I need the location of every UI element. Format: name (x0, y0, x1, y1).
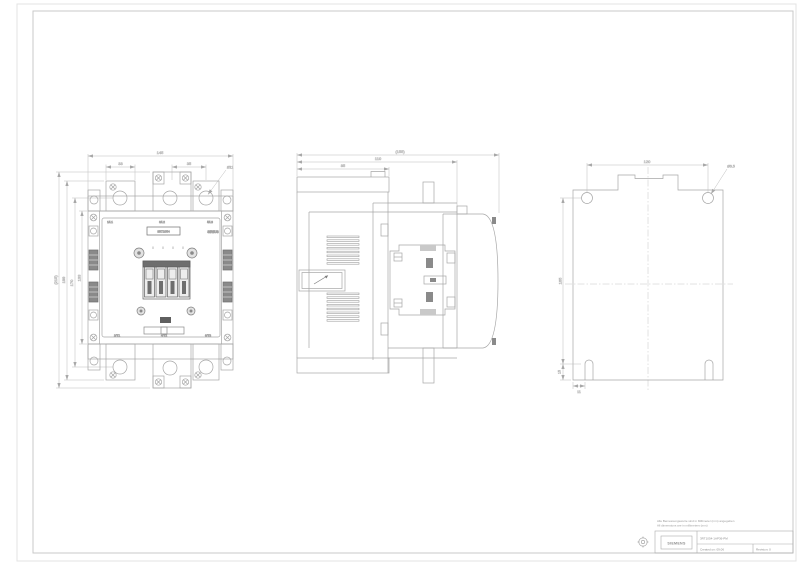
note-de: Alle Bemessungswerte sind in Millimeter … (657, 519, 735, 523)
terminal-label-2T1: 2/T1 (114, 334, 120, 338)
left-rail-clips (89, 226, 98, 320)
coil-terminal-block (143, 261, 190, 299)
dim-hole-dia: Ø11 (227, 166, 233, 170)
dim-hole-pitch: 120 (644, 159, 651, 164)
front-face: 1/L1 3/L2 5/L3 2/T1 4/T2 6/T3 3RT1054 SI… (102, 218, 220, 338)
dim-depth-mid: 110 (375, 156, 382, 161)
dim-lug-left: 33 (118, 161, 123, 166)
dim-lug-right: 35 (187, 161, 192, 166)
field-scale: Revision: 0 (756, 548, 771, 552)
title-block: Alle Bemessungswerte sind in Millimeter … (638, 519, 794, 553)
terminal-label-3L2: 3/L2 (159, 220, 165, 224)
mounting-slot-left (585, 360, 593, 380)
terminal-label-1L1: 1/L1 (107, 220, 113, 224)
dim-rear-height-holes: 165 (557, 277, 562, 284)
side-view-dimensions: (155) 110 85 (297, 149, 499, 213)
dim-depth-total: (155) (395, 149, 405, 154)
projection-symbol-icon (638, 537, 649, 548)
dim-depth-front: 85 (341, 163, 346, 168)
dim-slot-edge: 11 (577, 390, 581, 394)
front-terminals-bottom (88, 344, 233, 388)
front-terminals-top (88, 172, 233, 211)
device-type-label: 3RT1054 (157, 230, 170, 234)
dim-height-body: 133 (77, 274, 82, 281)
rear-view-dimensions: 120 Ø6.5 165 15 11 (557, 159, 734, 394)
company-logo: SIEMENS (667, 541, 686, 545)
dim-height-holes: 170 (69, 279, 74, 286)
note-en: All dimensions are in millimeters (mm) (657, 524, 708, 528)
dim-height-outer: 199 (61, 276, 66, 283)
dim-width-total: 145 (157, 150, 164, 155)
right-rail-clips (223, 226, 232, 320)
field-created: Created on: 09.06 (700, 548, 724, 552)
position-indicator-window (299, 270, 345, 291)
dim-slot-offset: 15 (558, 370, 562, 374)
mounting-hole-right (703, 193, 714, 204)
side-louvers (327, 236, 359, 321)
terminal-label-5L3: 5/L3 (207, 220, 213, 224)
brand-label: SIRIUS (207, 230, 219, 234)
mounting-hole-left (582, 193, 593, 204)
drawing-canvas: 145 33 35 Ø11 (215) 199 170 (0, 0, 800, 566)
terminal-label-6T3: 6/T3 (205, 334, 211, 338)
drawing-sheet: 145 33 35 Ø11 (215) 199 170 (0, 0, 800, 566)
front-view: 145 33 35 Ø11 (215) 199 170 (53, 150, 233, 388)
document-number: 3RT1054-1AP36-PM (700, 537, 728, 541)
rear-centerlines (565, 167, 733, 391)
rear-view: 120 Ø6.5 165 15 11 (557, 159, 734, 394)
status-indicator-window (160, 317, 171, 323)
sheet-border (17, 4, 796, 561)
side-rear-section (388, 182, 498, 383)
mounting-slot-right (705, 360, 713, 380)
dim-height-total: (215) (53, 275, 58, 285)
dim-rear-hole-dia: Ø6.5 (727, 165, 735, 169)
side-view: (155) 110 85 (297, 149, 499, 383)
